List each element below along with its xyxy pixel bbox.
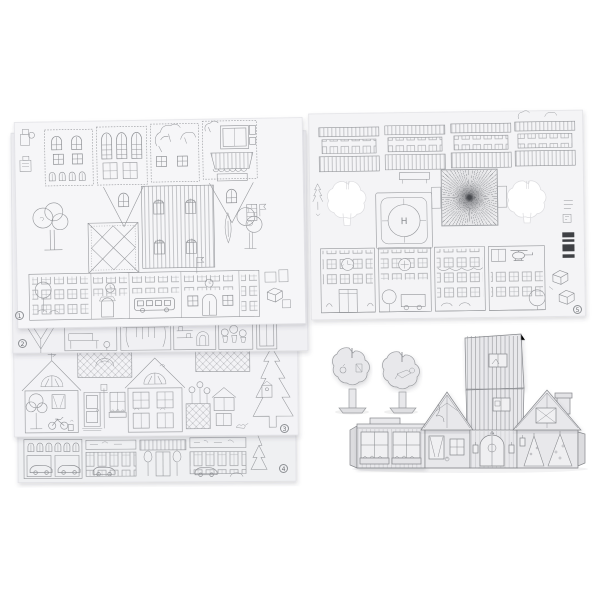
- product-photo: H: [0, 0, 600, 600]
- sheet-4: [18, 433, 296, 482]
- model-tree-1: [332, 348, 369, 413]
- helipad-letter: H: [401, 217, 408, 227]
- model-center-door: [470, 430, 518, 468]
- sheet-1-number-badge: 1: [15, 311, 24, 320]
- sheet-2-number-badge: 2: [18, 339, 27, 348]
- sheet-3: [14, 345, 299, 437]
- model-flat-section: [357, 418, 425, 468]
- model-gable-left: [421, 392, 473, 468]
- sheet-4-number-badge: 4: [279, 464, 288, 473]
- model-tree-2: [382, 352, 419, 413]
- sheet-5-number-badge: 5: [573, 305, 582, 314]
- model-tower: [465, 334, 525, 432]
- striped-awning-piece: [141, 185, 214, 268]
- sheet-3-number-badge: 3: [280, 424, 289, 433]
- assembled-model: [332, 334, 588, 473]
- sunburst-roof-piece: [441, 169, 499, 227]
- kit-illustration: H: [0, 0, 600, 600]
- trellis-panel: [78, 350, 132, 377]
- sheet-1: [14, 118, 306, 329]
